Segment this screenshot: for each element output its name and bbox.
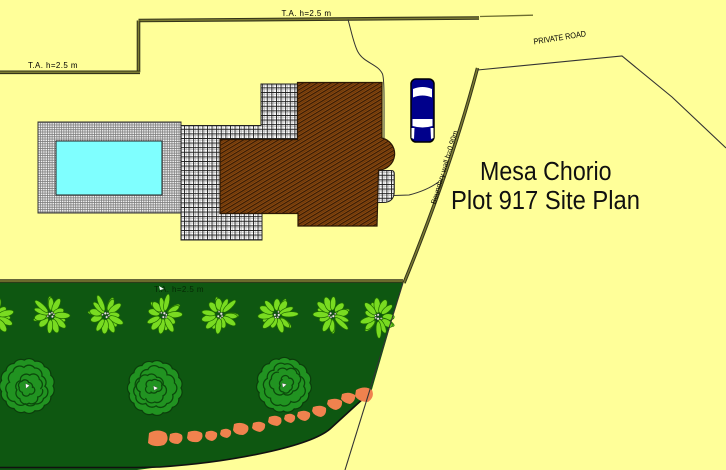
svg-text:Plot 917 Site Plan: Plot 917 Site Plan [451, 185, 640, 215]
svg-text:Mesa Chorio: Mesa Chorio [480, 156, 612, 186]
svg-text:T.A. h=2.5 m: T.A. h=2.5 m [282, 9, 332, 18]
svg-text:T.A. h=2.5 m: T.A. h=2.5 m [28, 61, 78, 70]
